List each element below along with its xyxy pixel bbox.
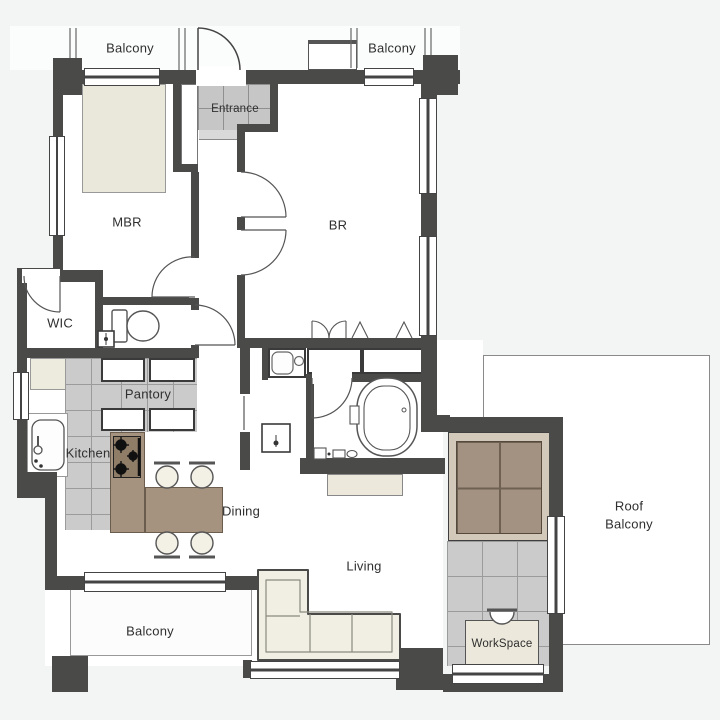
toilet-fixture (112, 310, 159, 342)
label-balcony-top-left: Balcony (106, 41, 154, 56)
label-entrance: Entrance (211, 103, 259, 115)
label-br: BR (329, 218, 347, 233)
label-balcony-bottom: Balcony (126, 624, 174, 639)
label-living: Living (346, 559, 381, 574)
sofa (258, 570, 400, 660)
label-workspace: WorkSpace (471, 638, 532, 650)
label-kitchen: Kitchen (66, 446, 111, 461)
br-double-door (241, 172, 286, 275)
dining-chairs (154, 463, 215, 557)
toilet-door (195, 305, 235, 345)
label-roof-balcony-2: Balcony (605, 517, 653, 532)
label-roof-balcony-1: Roof (615, 499, 643, 514)
mbr-door (152, 257, 195, 297)
floorplan-page: { "plan": { "title": "Apartment floor pl… (0, 0, 720, 720)
vanity-sink (272, 352, 304, 374)
workspace-chair (487, 610, 517, 624)
bathroom-door (312, 378, 352, 418)
label-pantry: Pantory (125, 387, 171, 402)
stove-burners (113, 437, 139, 477)
toilet-basin (98, 331, 114, 347)
fixtures-overlay (0, 0, 720, 720)
label-balcony-top-right: Balcony (368, 41, 416, 56)
washing-machine (262, 424, 290, 452)
closet-doors (312, 321, 412, 338)
label-mbr: MBR (112, 215, 142, 230)
bath-fixtures (314, 448, 357, 459)
wic-door (24, 276, 60, 312)
label-wic: WIC (47, 316, 73, 331)
bathtub (350, 378, 417, 456)
entrance-door (198, 28, 240, 70)
label-dining: Dining (222, 504, 260, 519)
kitchen-sink (32, 420, 64, 470)
